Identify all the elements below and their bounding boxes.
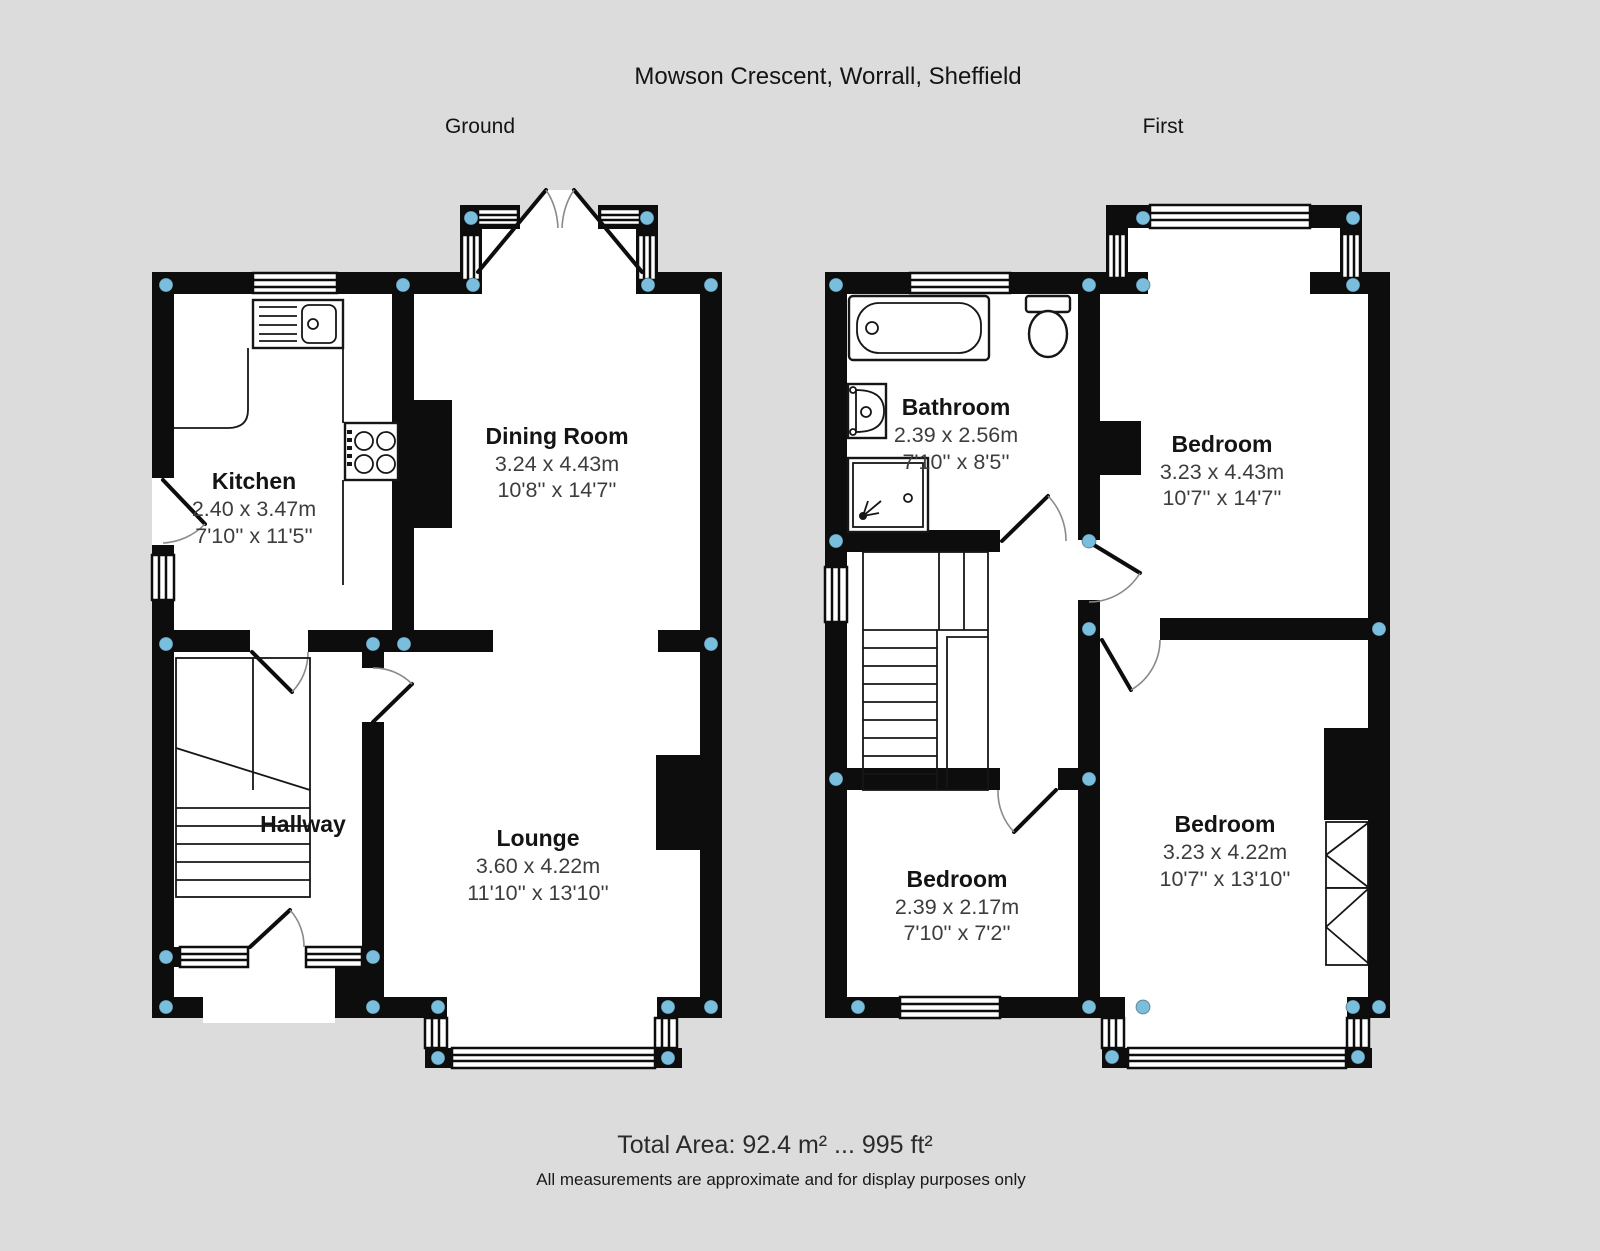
room-dim-imperial: 7'10'' x 8'5'' xyxy=(902,450,1009,474)
bath-icon xyxy=(849,296,989,360)
basin-icon xyxy=(848,384,886,438)
room-label-hallway: Hallway xyxy=(260,811,346,837)
kitchen-side-window-icon xyxy=(152,555,174,600)
room-label-bedroom-small: Bedroom 2.39 x 2.17m 7'10'' x 7'2'' xyxy=(895,866,1019,945)
room-name: Hallway xyxy=(260,811,346,837)
ground-floor-label: Ground xyxy=(445,115,515,138)
room-name: Kitchen xyxy=(212,468,296,494)
ground-floor-plan: Kitchen 2.40 x 3.47m 7'10'' x 11'5'' Din… xyxy=(152,190,722,1068)
room-label-dining-room: Dining Room 3.24 x 4.43m 10'8'' x 14'7'' xyxy=(485,423,628,502)
room-name: Bedroom xyxy=(1172,431,1273,457)
room-dim-imperial: 10'7'' x 13'10'' xyxy=(1159,867,1290,891)
room-dim-metric: 2.40 x 3.47m xyxy=(192,497,316,521)
room-name: Bathroom xyxy=(902,394,1011,420)
room-dim-imperial: 7'10'' x 7'2'' xyxy=(903,921,1010,945)
first-floor-label: First xyxy=(1143,115,1184,138)
room-label-bathroom: Bathroom 2.39 x 2.56m 7'10'' x 8'5'' xyxy=(894,394,1018,474)
room-dim-metric: 3.23 x 4.43m xyxy=(1160,460,1284,484)
floorplan-drawing: Mowson Crescent, Worrall, Sheffield Grou… xyxy=(0,0,1600,1251)
landing-window-icon xyxy=(825,567,847,622)
room-name: Bedroom xyxy=(907,866,1008,892)
bathroom-window-icon xyxy=(910,273,1010,293)
room-dim-metric: 3.24 x 4.43m xyxy=(495,452,619,476)
room-label-bedroom-front: Bedroom 3.23 x 4.43m 10'7'' x 14'7'' xyxy=(1160,431,1284,510)
ground-floor-area xyxy=(152,190,700,1048)
room-dim-metric: 3.23 x 4.22m xyxy=(1163,840,1287,864)
total-area-text: Total Area: 92.4 m² ... 995 ft² xyxy=(617,1131,932,1159)
disclaimer-text: All measurements are approximate and for… xyxy=(536,1170,1026,1189)
room-name: Bedroom xyxy=(1175,811,1276,837)
sink-icon xyxy=(253,300,343,348)
small-bedroom-window-icon xyxy=(900,997,1000,1018)
room-dim-metric: 2.39 x 2.56m xyxy=(894,423,1018,447)
room-dim-metric: 3.60 x 4.22m xyxy=(476,854,600,878)
floorplan-page: Mowson Crescent, Worrall, Sheffield Grou… xyxy=(0,0,1600,1251)
kitchen-window-icon xyxy=(253,273,337,293)
page-title: Mowson Crescent, Worrall, Sheffield xyxy=(634,63,1021,90)
room-label-bedroom-rear: Bedroom 3.23 x 4.22m 10'7'' x 13'10'' xyxy=(1159,811,1290,891)
room-dim-metric: 2.39 x 2.17m xyxy=(895,895,1019,919)
toilet-icon xyxy=(1026,296,1070,357)
room-dim-imperial: 11'10'' x 13'10'' xyxy=(467,881,608,905)
hob-icon xyxy=(345,423,398,480)
room-name: Lounge xyxy=(496,825,579,851)
room-dim-imperial: 7'10'' x 11'5'' xyxy=(195,524,312,548)
hall-front-window-left-icon xyxy=(180,947,248,967)
cupboard-doors-icon xyxy=(1326,822,1368,965)
room-name: Dining Room xyxy=(485,423,628,449)
room-dim-imperial: 10'8'' x 14'7'' xyxy=(497,478,616,502)
first-floor-plan: Bathroom 2.39 x 2.56m 7'10'' x 8'5'' Bed… xyxy=(825,205,1390,1068)
hall-front-window-right-icon xyxy=(306,947,362,967)
room-dim-imperial: 10'7'' x 14'7'' xyxy=(1162,486,1281,510)
